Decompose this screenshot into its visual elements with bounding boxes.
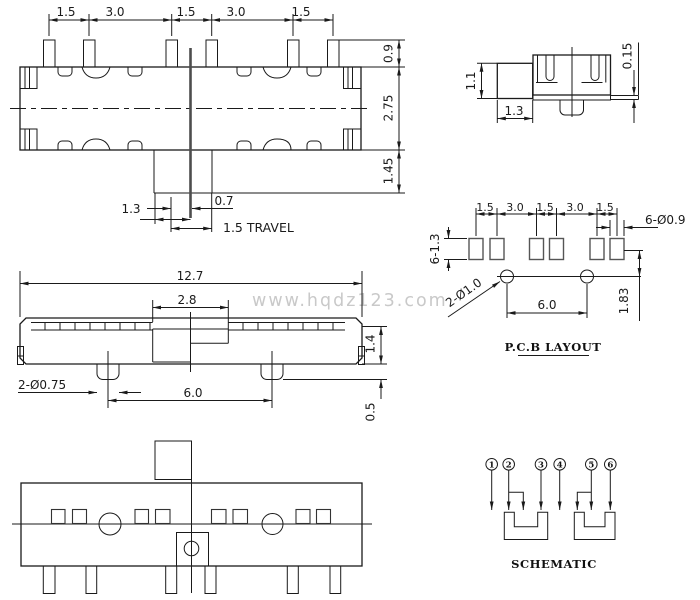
dim-label: 2.75: [382, 95, 396, 122]
dim-label: 3.0: [226, 5, 245, 19]
dim-label: 1.5: [56, 5, 75, 19]
side-view: 1.1 1.3 0.15: [464, 43, 639, 124]
pcb-top-dimensions: 1.5 3.0 1.5 3.0 1.5: [476, 201, 617, 236]
dim-label: 1.45: [382, 158, 396, 185]
bottom-view: [12, 441, 372, 594]
pin-number: 5: [588, 461, 594, 471]
technical-drawing-page: www.hqdz123.com: [0, 0, 700, 600]
dim-label: 2-Ø1.0: [443, 275, 484, 310]
dim-label: 2.8: [177, 293, 196, 307]
schematic-title: SCHEMATIC: [511, 557, 597, 571]
watermark-text: www.hqdz123.com: [252, 291, 448, 311]
pin-number: 1: [489, 461, 495, 471]
side-dim-knob-width: 1.3: [497, 100, 532, 123]
pcb-dim-hole-spacing: 6.0: [507, 284, 587, 318]
dim-label: 1.5: [291, 5, 310, 19]
dim-label: 6.0: [537, 298, 556, 312]
pcb-layout-view: 1.5 3.0 1.5 3.0 1.5 6-Ø0.9 6-1.3: [428, 201, 686, 356]
pin-number: 4: [557, 461, 563, 471]
dim-label: 0.9: [382, 44, 396, 63]
dim-label: 1.5 TRAVEL: [223, 220, 294, 235]
front-bottom-dimensions: 0.7 1.3 1.5 TRAVEL: [121, 193, 293, 235]
dim-label: 3.0: [506, 201, 524, 214]
dim-label: 1.3: [121, 202, 140, 216]
dim-label: 0.5: [364, 402, 378, 421]
top-dim-post-height: 0.5: [283, 380, 387, 422]
dim-label: 1.4: [364, 334, 378, 353]
front-view: 1.5 3.0 1.5 3.0 1.5 0.9 2.75 1.45 0.: [10, 5, 405, 235]
dim-label: 1.5: [596, 201, 614, 214]
dim-label: 0.7: [214, 194, 233, 208]
pcb-dim-pad-size: 6-1.3: [428, 227, 467, 271]
front-top-dimensions: 1.5 3.0 1.5 3.0 1.5: [49, 5, 333, 36]
dim-label: 1.3: [504, 104, 523, 118]
dim-label: 1.83: [617, 288, 631, 315]
schematic-view: 1 2 3 4 5 6 SCHEMATIC: [486, 459, 616, 572]
dim-label: 3.0: [105, 5, 124, 19]
pcb-dim-pad-holes: 6-Ø0.9: [596, 213, 686, 236]
dim-label: 1.5: [476, 201, 494, 214]
dim-label: 12.7: [177, 269, 204, 283]
dim-label: 1.5: [536, 201, 554, 214]
dim-label: 1.1: [464, 71, 478, 90]
pin-number: 2: [506, 461, 512, 471]
pcb-dim-mount-holes: 2-Ø1.0: [443, 275, 500, 317]
side-dim-knob-height: 1.1: [464, 63, 497, 98]
dim-label: 3.0: [566, 201, 584, 214]
dim-label: 2-Ø0.75: [18, 378, 66, 392]
pcb-dim-row-offset: 1.83: [617, 251, 643, 322]
dim-label: 6.0: [183, 386, 202, 400]
pcb-layout-title: P.C.B LAYOUT: [505, 340, 602, 354]
top-dim-cover-height: 1.4: [362, 327, 387, 365]
dim-label: 0.15: [621, 43, 635, 70]
side-dim-pin-thickness: 0.15: [621, 43, 639, 124]
top-dim-post-spacing: 6.0: [108, 386, 272, 401]
pin-number: 3: [538, 461, 544, 471]
pin-number: 6: [607, 461, 613, 471]
dim-label: 1.5: [176, 5, 195, 19]
dim-label: 6-1.3: [428, 233, 442, 264]
slide-switch-drawing: www.hqdz123.com: [0, 0, 700, 600]
top-dim-posts: 2-Ø0.75: [18, 378, 141, 393]
dim-label: 6-Ø0.9: [645, 213, 686, 227]
front-right-dimensions: 0.9 2.75 1.45: [339, 40, 405, 193]
